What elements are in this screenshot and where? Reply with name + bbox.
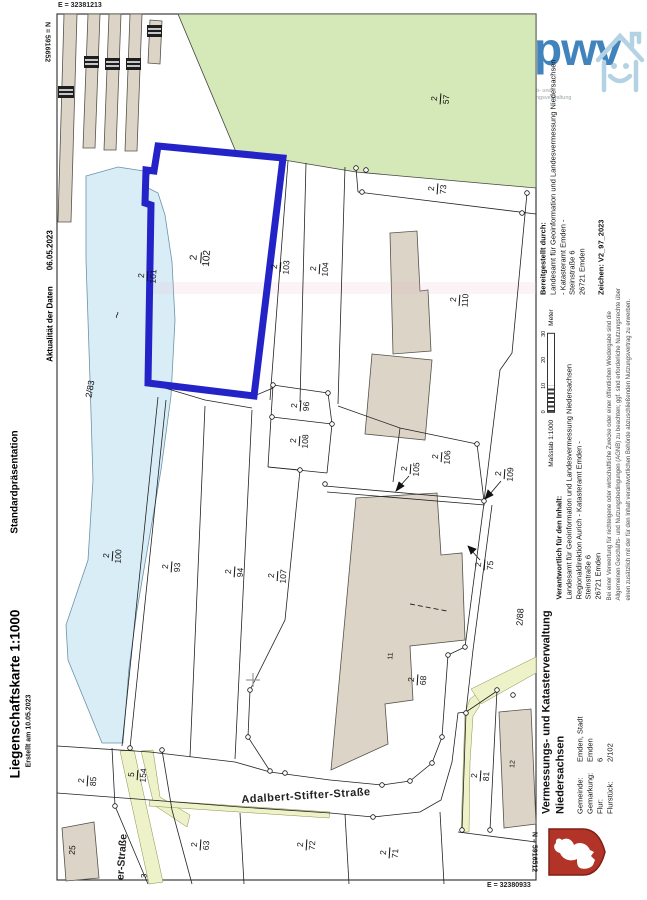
parcel-label-2-108: 2108 <box>289 433 310 449</box>
house-number-11: 11 <box>387 652 394 660</box>
usage-disclaimer: Bei einer Verwertung für nichteigene ode… <box>606 56 634 601</box>
parcel-label-2-75: 275 <box>474 559 495 571</box>
parcel-label-2-88: 2/88 <box>514 608 525 626</box>
coord-bottom-east: E = 32380933 <box>487 882 531 889</box>
parcel-label-2-96: 296 <box>290 400 311 412</box>
coord-bottom-north: N = 5916512 <box>531 832 538 872</box>
responsible-block: Verantwortlich für den Inhalt: Landesamt… <box>555 295 604 600</box>
created-date: Erstellt am 10.05.2023 <box>26 695 33 768</box>
parcel-label-2-63: 263 <box>190 839 211 851</box>
parcel-label-2-73: 273 <box>427 183 448 195</box>
data-currency: Aktualität der Daten06.05.2023 <box>46 230 55 362</box>
parcel-label-2-81: 281 <box>470 770 491 782</box>
parcel-label-2-110: 2110 <box>449 293 470 308</box>
niedersachsen-horse-crest-icon <box>547 825 607 879</box>
house-number-25: 25 <box>67 845 78 855</box>
parcel-label-2-100: 2100 <box>102 548 123 564</box>
parcel-label-2-106: 2106 <box>431 449 452 465</box>
house-number-12: 12 <box>509 760 516 768</box>
parcel-label-2-68: 268 <box>407 674 428 686</box>
parcel-label-2-85: 285 <box>77 775 98 787</box>
authority-block: Vermessungs- und Katasterverwaltung Nied… <box>541 592 616 814</box>
parcel-label-2-93: 293 <box>161 561 182 573</box>
parcel-label-2-72: 272 <box>296 839 317 851</box>
parcel-label-2-94: 294 <box>224 566 245 578</box>
parcel-label-2-105: 2105 <box>400 461 421 477</box>
coord-top-north: N = 5916652 <box>44 22 51 62</box>
presentation-type: Standardpräsentation <box>10 430 21 533</box>
cadastral-map-sheet: { "left_panel": { "title": "Liegenschaft… <box>0 0 647 900</box>
parcel-label-5-154: 5154 <box>127 767 148 783</box>
parcel-label-2-102: 2102 <box>189 249 213 267</box>
coord-top-east: E = 32381213 <box>58 2 102 9</box>
partial-label: 3 <box>139 873 148 878</box>
parcel-label-2-107: 2107 <box>267 568 288 584</box>
scan-artifact <box>150 282 536 294</box>
parcel-label-2-101: 2101 <box>137 268 158 284</box>
parcel-label-2-71: 271 <box>379 847 400 859</box>
building-12 <box>499 709 536 828</box>
parcel-label-2-57: 257 <box>430 93 451 105</box>
parcel-label-2-104: 2104 <box>309 261 330 277</box>
sheet-title: Liegenschaftskarte 1:1000 <box>8 610 23 779</box>
parcel-label-2-109: 2109 <box>494 466 515 482</box>
parcel-label-2-103: 2103 <box>270 259 291 275</box>
provided-by-block: Bereitgestellt durch: Landesamt für Geoi… <box>538 55 606 295</box>
